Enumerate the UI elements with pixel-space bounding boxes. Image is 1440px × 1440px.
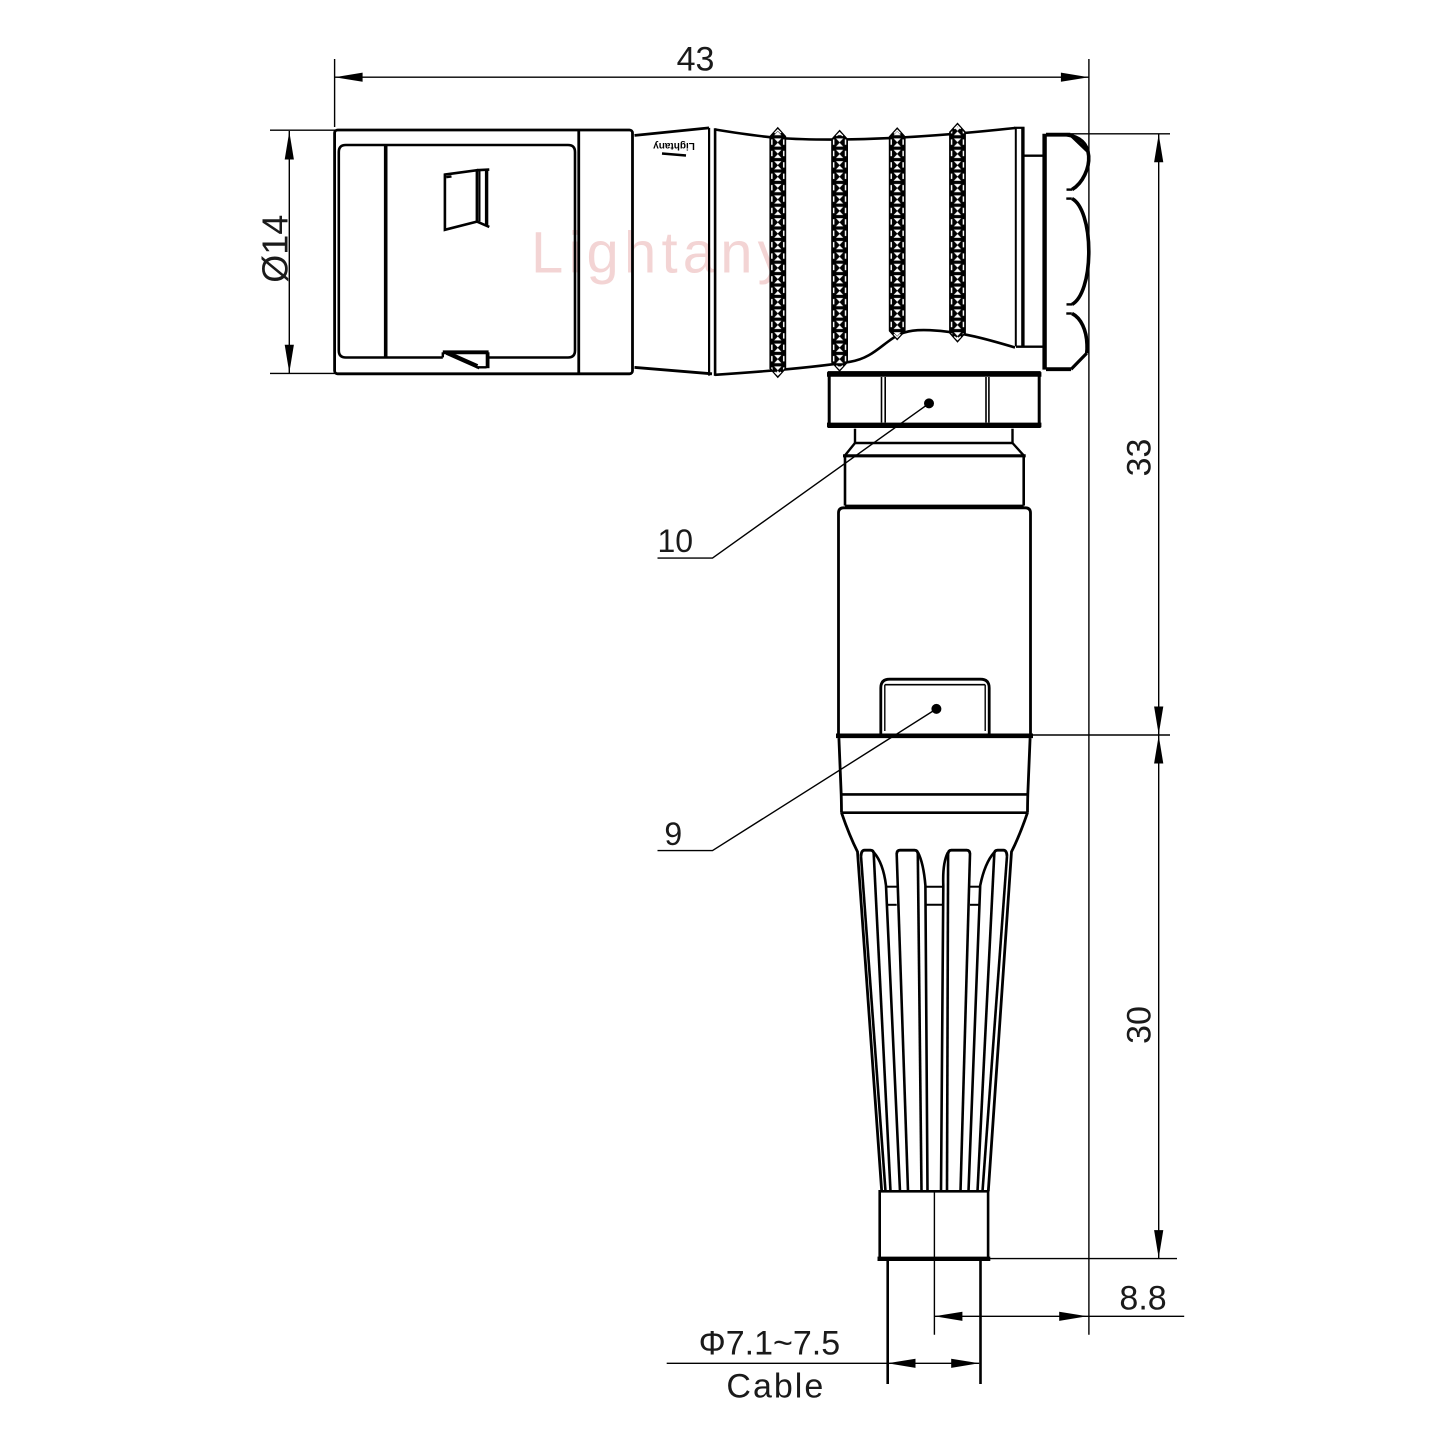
svg-text:Ø14: Ø14 (255, 215, 296, 283)
svg-text:Φ7.1~7.5: Φ7.1~7.5 (699, 1325, 841, 1363)
svg-text:Lightany: Lightany (653, 140, 695, 151)
svg-text:33: 33 (1121, 439, 1159, 477)
svg-text:8.8: 8.8 (1119, 1280, 1166, 1318)
svg-text:Cable: Cable (726, 1368, 825, 1406)
svg-text:Lightany: Lightany (531, 221, 792, 286)
svg-text:9: 9 (664, 816, 682, 852)
svg-text:10: 10 (658, 523, 694, 559)
svg-text:43: 43 (677, 41, 715, 79)
svg-text:30: 30 (1121, 1006, 1159, 1044)
